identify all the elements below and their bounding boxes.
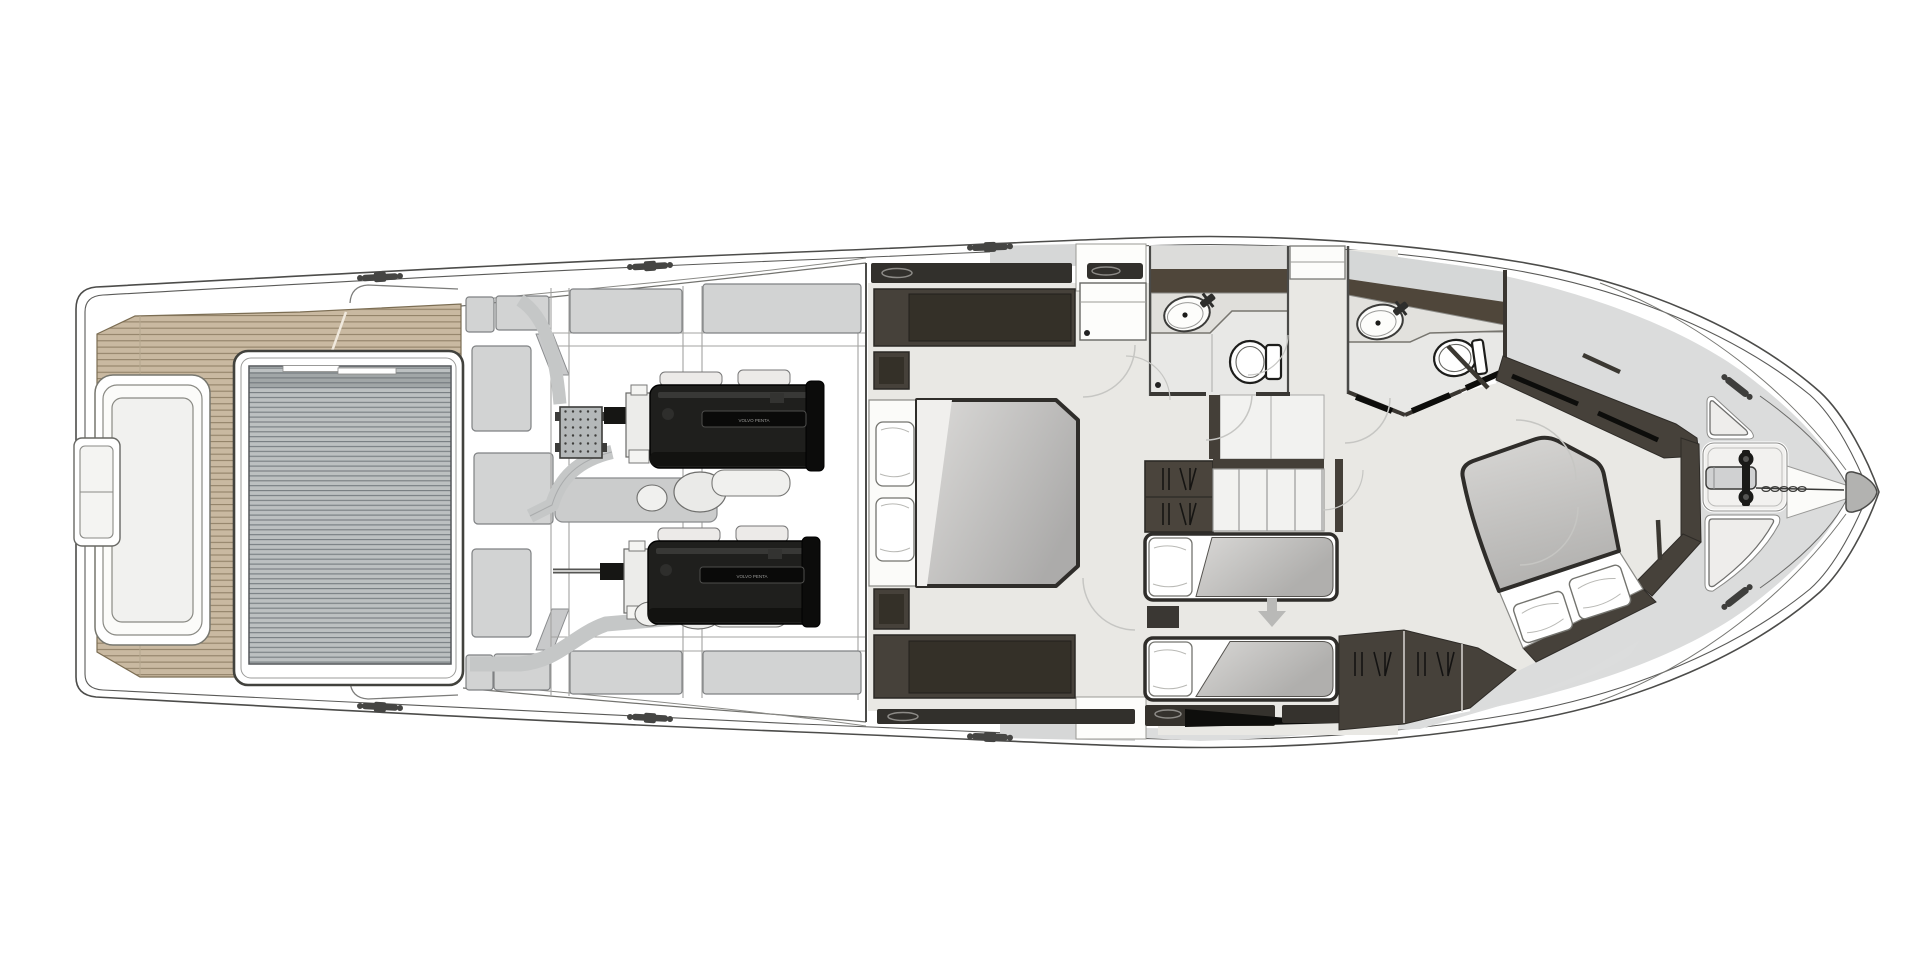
svg-text:VOLVO PENTA: VOLVO PENTA: [738, 418, 769, 423]
svg-text:VOLVO PENTA: VOLVO PENTA: [736, 574, 767, 579]
